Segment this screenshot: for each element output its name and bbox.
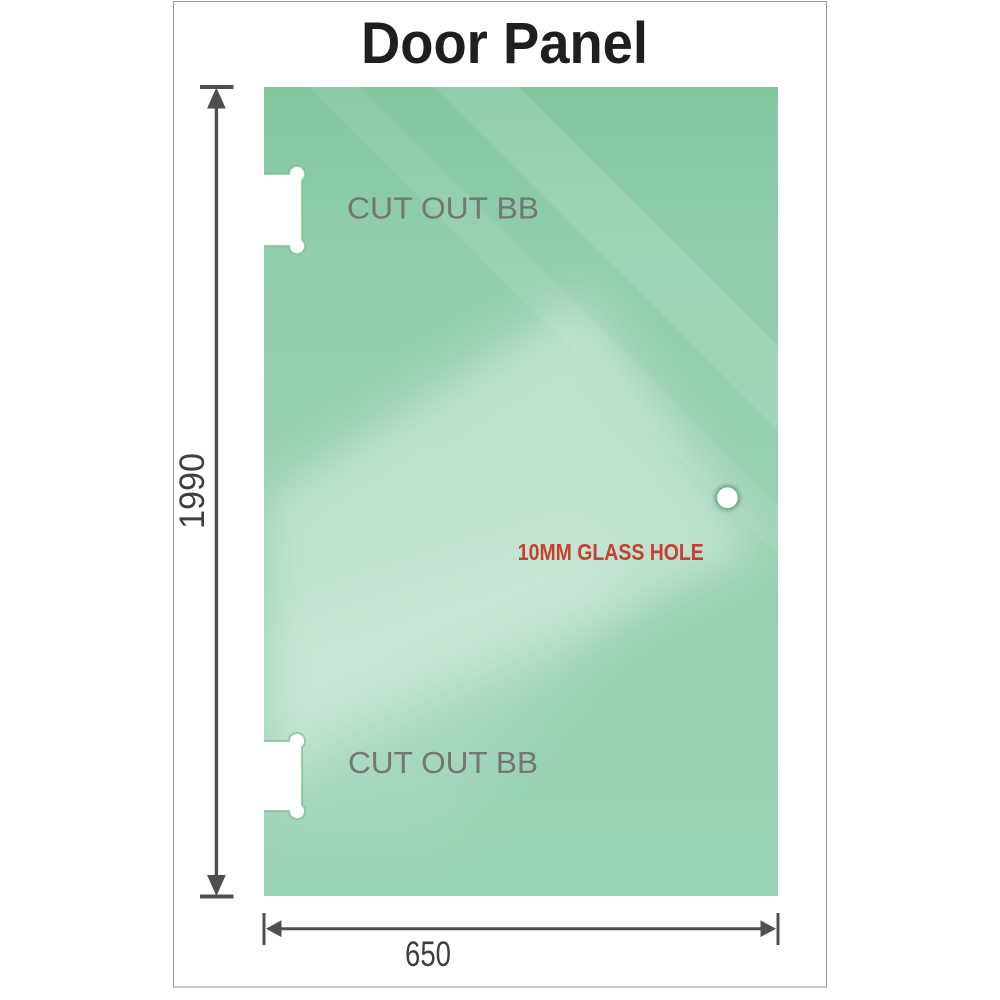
svg-text:CUT OUT BB: CUT OUT BB bbox=[347, 191, 539, 226]
svg-text:1990: 1990 bbox=[173, 453, 212, 529]
svg-text:10MM GLASS HOLE: 10MM GLASS HOLE bbox=[518, 539, 704, 565]
svg-text:650: 650 bbox=[405, 935, 451, 974]
svg-text:CUT OUT BB: CUT OUT BB bbox=[348, 745, 538, 780]
svg-text:Door Panel: Door Panel bbox=[361, 11, 648, 76]
